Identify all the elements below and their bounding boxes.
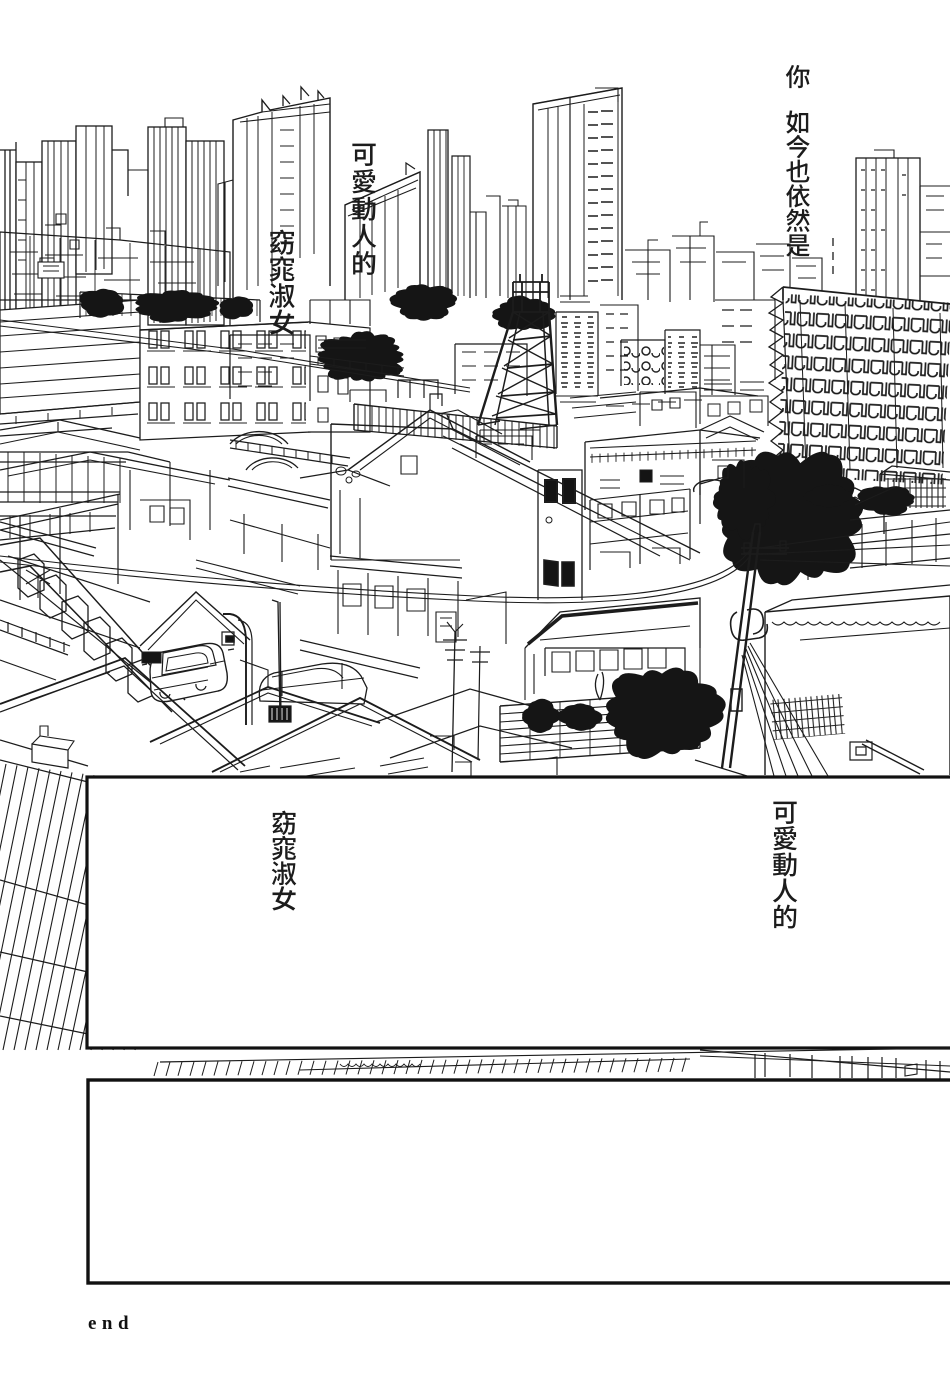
svg-text:end: end [88, 1313, 134, 1334]
